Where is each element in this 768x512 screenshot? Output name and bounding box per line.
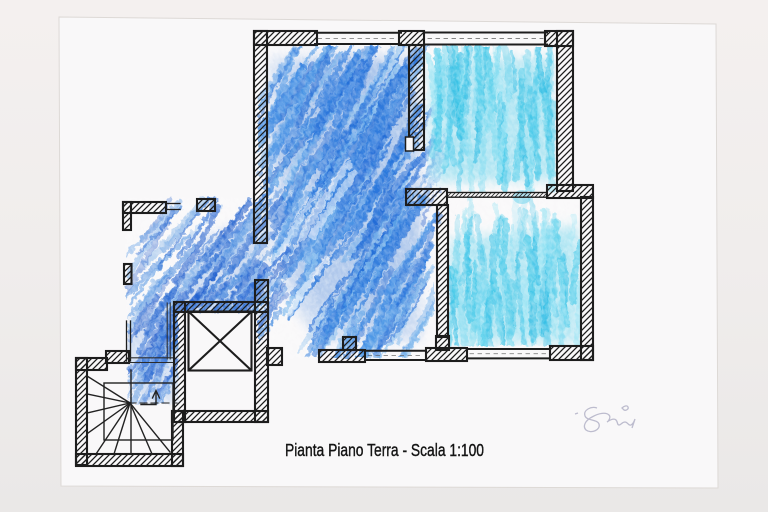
svg-text:Pianta Piano Terra - Scala 1:1: Pianta Piano Terra - Scala 1:100: [285, 440, 484, 460]
